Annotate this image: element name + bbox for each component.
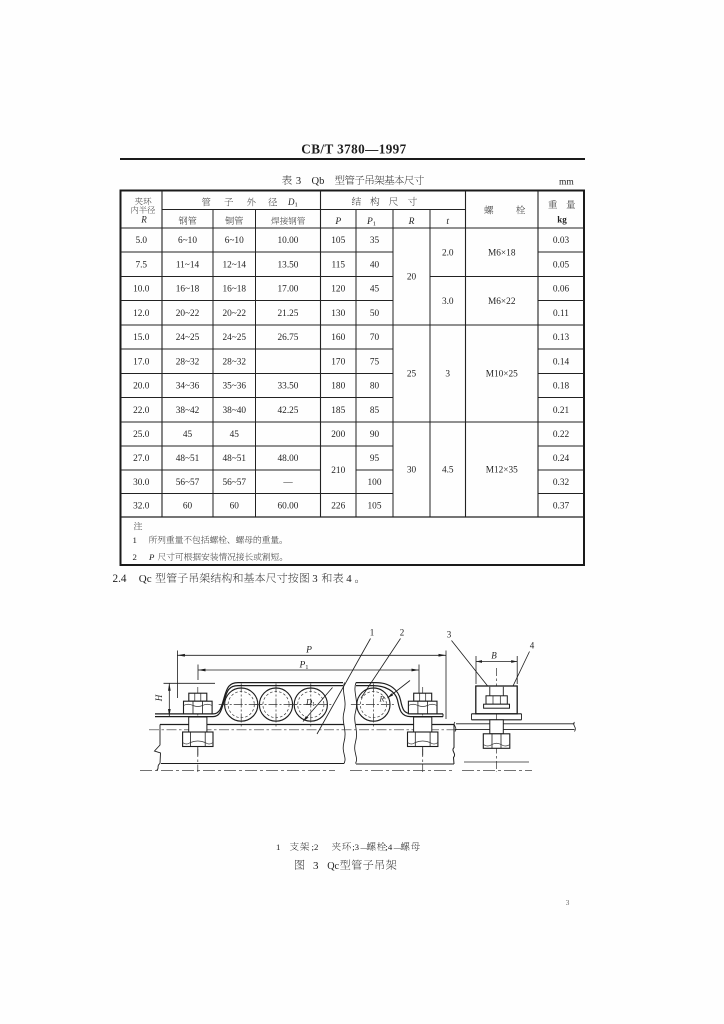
svg-text:0.13: 0.13 xyxy=(553,333,570,343)
svg-text:60: 60 xyxy=(230,501,240,511)
svg-text:M10×25: M10×25 xyxy=(486,370,518,380)
svg-text:200: 200 xyxy=(331,430,345,440)
svg-text:5.0: 5.0 xyxy=(135,236,147,246)
svg-text:45: 45 xyxy=(183,430,193,440)
svg-text:20~22: 20~22 xyxy=(176,309,200,319)
svg-text:34~36: 34~36 xyxy=(176,382,200,392)
svg-text:3: 3 xyxy=(313,860,319,872)
svg-text:1: 1 xyxy=(276,842,280,852)
svg-text:30.0: 30.0 xyxy=(133,478,150,488)
svg-text:3.0: 3.0 xyxy=(442,297,454,307)
svg-text:3: 3 xyxy=(566,898,570,907)
svg-text:35~36: 35~36 xyxy=(222,382,246,392)
svg-text:170: 170 xyxy=(331,357,345,367)
svg-text:32.0: 32.0 xyxy=(133,501,150,511)
svg-text:0.37: 0.37 xyxy=(553,501,570,511)
svg-text:7.5: 7.5 xyxy=(135,260,147,270)
svg-text:160: 160 xyxy=(331,333,345,343)
svg-text:0.05: 0.05 xyxy=(553,260,570,270)
svg-text:;4: ;4 xyxy=(385,842,392,852)
svg-text:D1: D1 xyxy=(287,197,298,209)
svg-text:226: 226 xyxy=(331,501,345,511)
svg-text:16~18: 16~18 xyxy=(222,285,246,295)
svg-text:180: 180 xyxy=(331,382,345,392)
svg-text:38~40: 38~40 xyxy=(222,406,246,416)
svg-text:2.4: 2.4 xyxy=(113,573,127,585)
svg-text:56~57: 56~57 xyxy=(176,478,200,488)
svg-text:12.0: 12.0 xyxy=(133,309,150,319)
svg-text:P: P xyxy=(334,217,341,227)
svg-text:38~42: 38~42 xyxy=(176,406,200,416)
svg-text:15.0: 15.0 xyxy=(133,333,150,343)
svg-text:25.0: 25.0 xyxy=(133,430,150,440)
svg-text:P1: P1 xyxy=(298,660,308,671)
svg-text:10.00: 10.00 xyxy=(278,236,299,246)
svg-text:4: 4 xyxy=(530,641,535,651)
svg-text:16~18: 16~18 xyxy=(176,285,200,295)
svg-text:t: t xyxy=(446,217,449,227)
svg-text:115: 115 xyxy=(331,260,345,270)
svg-text:6~10: 6~10 xyxy=(225,236,244,246)
svg-text:28~32: 28~32 xyxy=(176,357,200,367)
svg-text:185: 185 xyxy=(331,406,345,416)
svg-text:120: 120 xyxy=(331,285,345,295)
svg-text:80: 80 xyxy=(370,382,380,392)
svg-text:40: 40 xyxy=(370,260,380,270)
svg-text:4: 4 xyxy=(346,573,352,585)
svg-text:12~14: 12~14 xyxy=(222,260,246,270)
svg-text:56~57: 56~57 xyxy=(222,478,246,488)
svg-text:3: 3 xyxy=(296,176,301,187)
svg-text:CB/T 3780—1997: CB/T 3780—1997 xyxy=(301,142,406,157)
svg-text:10.0: 10.0 xyxy=(133,285,150,295)
svg-text:0.14: 0.14 xyxy=(553,357,570,367)
svg-text:25: 25 xyxy=(407,370,417,380)
svg-text:;2: ;2 xyxy=(312,842,319,852)
svg-text:Qc: Qc xyxy=(327,861,339,872)
svg-text:;3: ;3 xyxy=(352,842,359,852)
svg-text:2.0: 2.0 xyxy=(442,248,454,258)
svg-text:21.25: 21.25 xyxy=(278,309,299,319)
svg-text:22.0: 22.0 xyxy=(133,406,150,416)
svg-text:R: R xyxy=(379,695,385,704)
svg-text:27.0: 27.0 xyxy=(133,454,150,464)
svg-text:95: 95 xyxy=(370,454,380,464)
svg-text:0.03: 0.03 xyxy=(553,236,570,246)
svg-text:0.24: 0.24 xyxy=(553,454,570,464)
svg-text:B: B xyxy=(491,651,497,661)
svg-text:1: 1 xyxy=(370,628,375,638)
svg-text:R: R xyxy=(408,217,415,227)
svg-text:20.0: 20.0 xyxy=(133,382,150,392)
svg-text:42.25: 42.25 xyxy=(278,406,299,416)
svg-text:0.32: 0.32 xyxy=(553,478,570,488)
svg-text:28~32: 28~32 xyxy=(222,357,246,367)
svg-text:—: — xyxy=(360,843,370,852)
svg-text:45: 45 xyxy=(230,430,240,440)
svg-text:17.0: 17.0 xyxy=(133,357,150,367)
svg-text:mm: mm xyxy=(559,178,574,188)
svg-text:P: P xyxy=(148,552,155,562)
svg-text:3: 3 xyxy=(312,573,317,585)
svg-text:48.00: 48.00 xyxy=(278,454,299,464)
svg-text:35: 35 xyxy=(370,236,380,246)
svg-text:D1: D1 xyxy=(305,697,315,709)
svg-text:R: R xyxy=(140,215,147,225)
svg-text:2: 2 xyxy=(400,628,405,638)
svg-text:11~14: 11~14 xyxy=(176,260,200,270)
svg-text:M6×22: M6×22 xyxy=(488,297,516,307)
svg-text:1: 1 xyxy=(133,535,137,545)
svg-text:210: 210 xyxy=(331,466,345,476)
svg-text:30: 30 xyxy=(407,466,417,476)
svg-text:26.75: 26.75 xyxy=(278,333,299,343)
svg-text:33.50: 33.50 xyxy=(278,382,299,392)
svg-text:48~51: 48~51 xyxy=(222,454,246,464)
svg-text:H: H xyxy=(154,694,164,702)
svg-text:0.11: 0.11 xyxy=(553,309,569,319)
svg-text:M6×18: M6×18 xyxy=(488,248,516,258)
svg-text:M12×35: M12×35 xyxy=(486,466,518,476)
svg-text:0.21: 0.21 xyxy=(553,406,570,416)
svg-text:50: 50 xyxy=(370,309,380,319)
svg-text:17.00: 17.00 xyxy=(278,285,299,295)
svg-text:75: 75 xyxy=(370,357,380,367)
svg-text:—: — xyxy=(282,478,293,488)
svg-text:70: 70 xyxy=(370,333,380,343)
svg-text:3: 3 xyxy=(447,630,452,640)
svg-text:0.06: 0.06 xyxy=(553,285,570,295)
svg-text:Qc: Qc xyxy=(139,573,152,585)
svg-text:45: 45 xyxy=(370,285,380,295)
svg-text:2: 2 xyxy=(133,552,137,562)
svg-text:60: 60 xyxy=(183,501,193,511)
svg-text:24~25: 24~25 xyxy=(176,333,200,343)
svg-text:105: 105 xyxy=(331,236,345,246)
svg-text:Qb: Qb xyxy=(312,176,325,187)
svg-text:0.22: 0.22 xyxy=(553,430,570,440)
svg-text:48~51: 48~51 xyxy=(176,454,200,464)
svg-text:90: 90 xyxy=(370,430,380,440)
svg-text:60.00: 60.00 xyxy=(278,501,299,511)
svg-text:13.50: 13.50 xyxy=(278,260,299,270)
svg-text:4.5: 4.5 xyxy=(442,466,454,476)
svg-text:100: 100 xyxy=(368,478,382,488)
svg-text:85: 85 xyxy=(370,406,380,416)
svg-text:20~22: 20~22 xyxy=(222,309,246,319)
svg-text:P: P xyxy=(305,646,312,656)
svg-text:105: 105 xyxy=(368,501,382,511)
svg-text:kg: kg xyxy=(557,215,567,225)
svg-text:20: 20 xyxy=(407,273,417,283)
svg-text:24~25: 24~25 xyxy=(222,333,246,343)
svg-text:0.18: 0.18 xyxy=(553,382,570,392)
svg-text:3: 3 xyxy=(445,370,450,380)
svg-text:6~10: 6~10 xyxy=(178,236,197,246)
svg-text:130: 130 xyxy=(331,309,345,319)
svg-text:P1: P1 xyxy=(366,217,376,228)
